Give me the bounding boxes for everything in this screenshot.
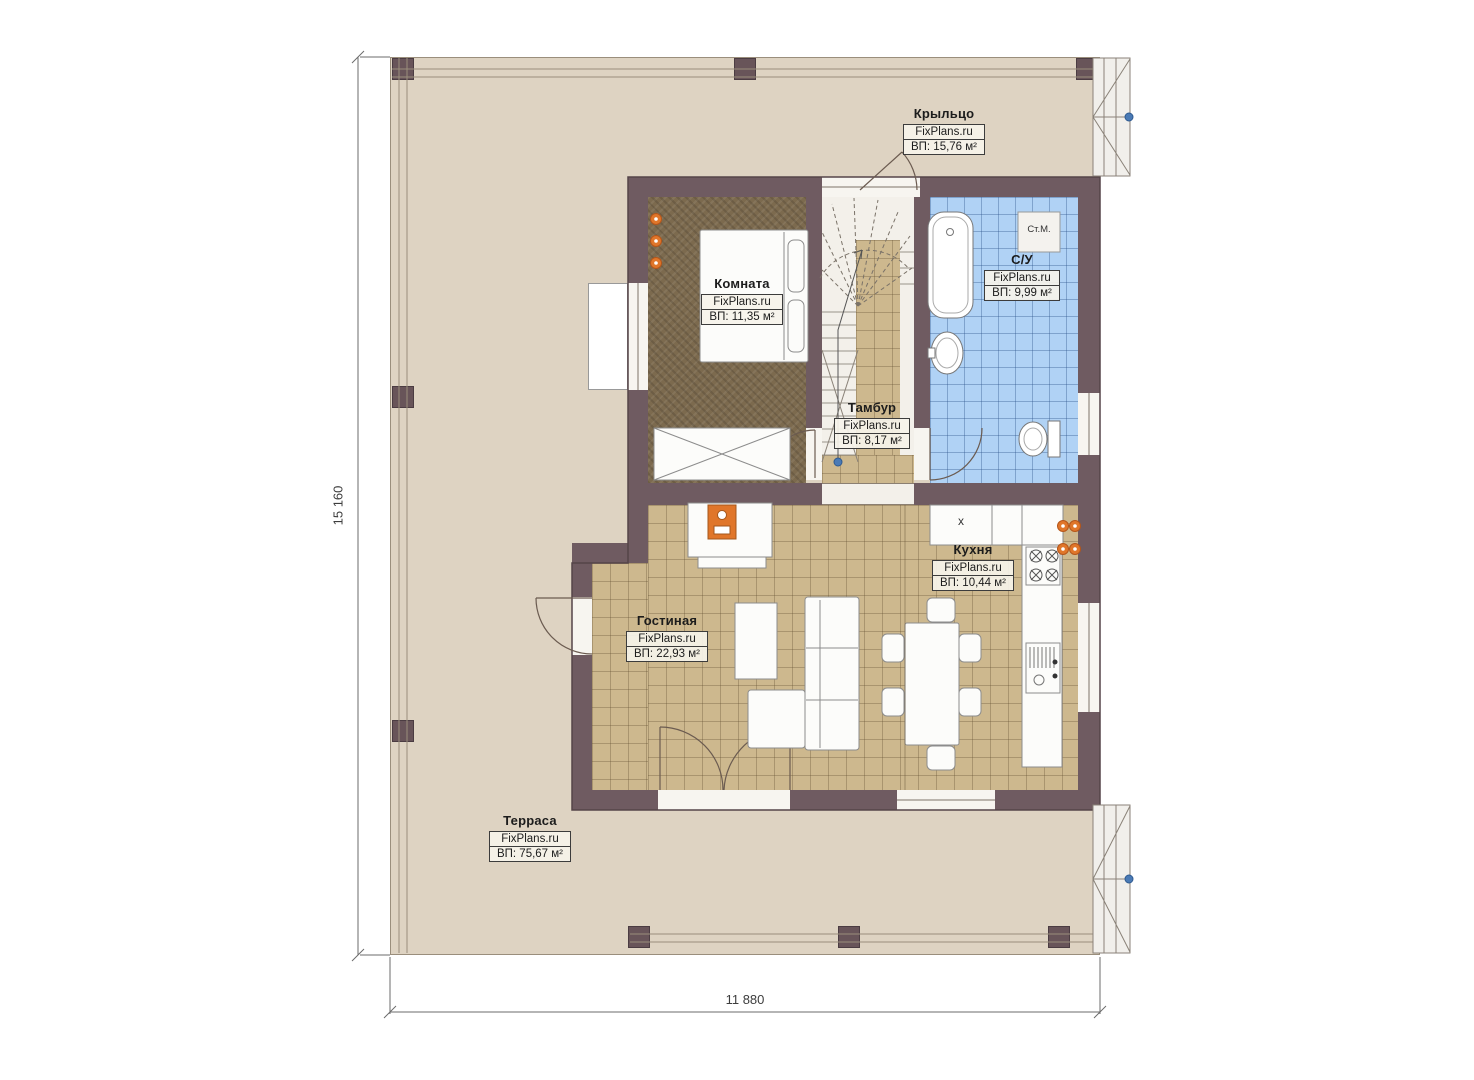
room-label-porch: Крыльцо FixPlans.ru ВП: 15,76 м² [889, 106, 999, 155]
sofa [805, 597, 859, 750]
area-label: ВП: 22,93 м² [627, 647, 707, 661]
plan-graphics [0, 0, 1474, 1080]
level-marker-icon [1125, 113, 1133, 121]
room-name: С/У [967, 252, 1077, 267]
area-label: ВП: 8,17 м² [835, 434, 909, 448]
chair [882, 688, 904, 716]
brand-label: FixPlans.ru [627, 632, 707, 647]
stair-winder-treads [820, 198, 912, 306]
spotlight-icon [1070, 544, 1081, 555]
room-name: Терраса [475, 813, 585, 828]
spotlight-icon [1058, 544, 1069, 555]
dimension-vertical: 15 160 [330, 486, 345, 526]
spotlight-icon [651, 258, 662, 269]
dimension-horizontal: 11 880 [695, 992, 795, 1007]
dining-table [905, 623, 959, 745]
room-name: Комната [687, 276, 797, 291]
bathroom-fixtures [928, 212, 1060, 457]
room-label-bathroom: С/У FixPlans.ru ВП: 9,99 м² [967, 252, 1077, 301]
area-label: ВП: 15,76 м² [904, 140, 984, 154]
chair [882, 634, 904, 662]
sink-drainboard [1030, 647, 1054, 668]
room-label-bedroom: Комната FixPlans.ru ВП: 11,35 м² [687, 276, 797, 325]
coffee-table [735, 603, 777, 679]
dining-set [882, 598, 981, 770]
level-marker-icon [1125, 875, 1133, 883]
toilet-tank [1048, 421, 1060, 457]
brand-label: FixPlans.ru [835, 419, 909, 434]
living-side-door [536, 598, 592, 654]
hearth [698, 557, 766, 568]
exterior-steps-top [1093, 58, 1133, 176]
area-label: ВП: 9,99 м² [985, 286, 1059, 300]
brand-label: FixPlans.ru [933, 561, 1013, 576]
sofa-chaise [748, 690, 805, 748]
chair [927, 746, 955, 770]
entrance-door [860, 152, 917, 190]
room-label-terrace: Терраса FixPlans.ru ВП: 75,67 м² [475, 813, 585, 862]
kitchen-sink [1026, 643, 1060, 693]
bathroom-door [930, 428, 982, 480]
brand-label: FixPlans.ru [490, 832, 570, 847]
chair [959, 634, 981, 662]
spotlight-icon [651, 214, 662, 225]
toilet-bowl [1019, 422, 1047, 456]
area-label: ВП: 75,67 м² [490, 847, 570, 861]
washing-machine-label: Ст.М. [1016, 224, 1062, 235]
spotlight-icon [1070, 521, 1081, 532]
floor-plan: Крыльцо FixPlans.ru ВП: 15,76 м² Комната… [0, 0, 1474, 1080]
spotlight-icon [651, 236, 662, 247]
chair [959, 688, 981, 716]
chair [927, 598, 955, 622]
brand-label: FixPlans.ru [702, 295, 781, 310]
cabinet-x-label: x [930, 514, 992, 528]
room-name: Гостиная [612, 613, 722, 628]
brand-label: FixPlans.ru [904, 125, 984, 140]
spotlight-icon [1058, 521, 1069, 532]
room-label-living: Гостиная FixPlans.ru ВП: 22,93 м² [612, 613, 722, 662]
area-label: ВП: 10,44 м² [933, 576, 1013, 590]
room-name: Кухня [918, 542, 1028, 557]
area-label: ВП: 11,35 м² [702, 310, 781, 324]
exterior-steps-bottom [1093, 805, 1133, 953]
bedroom-furniture [654, 230, 808, 480]
room-label-kitchen: Кухня FixPlans.ru ВП: 10,44 м² [918, 542, 1028, 591]
room-name: Тамбур [817, 400, 927, 415]
room-name: Крыльцо [889, 106, 999, 121]
brand-label: FixPlans.ru [985, 271, 1059, 286]
room-label-vestibule: Тамбур FixPlans.ru ВП: 8,17 м² [817, 400, 927, 449]
